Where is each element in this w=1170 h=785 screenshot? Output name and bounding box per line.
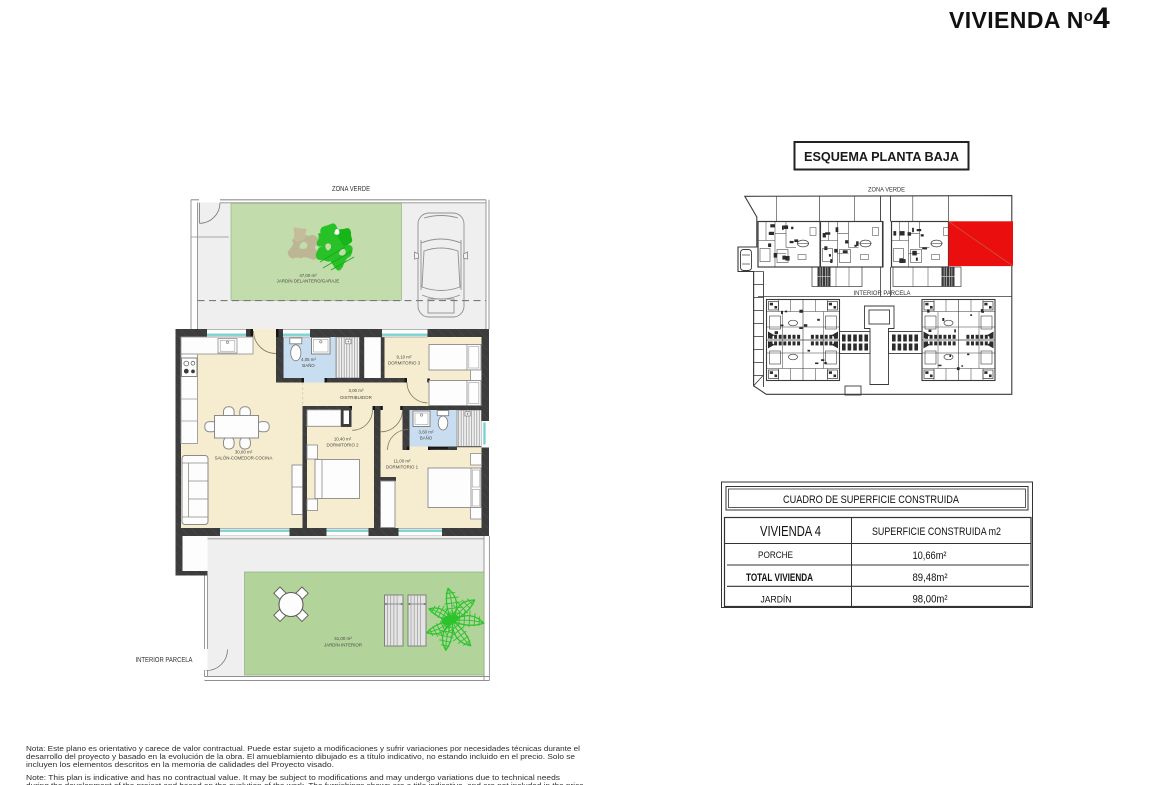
svg-text:JARDÍN INTERIOR: JARDÍN INTERIOR (324, 642, 362, 647)
svg-text:VIVIENDA 4: VIVIENDA 4 (760, 523, 821, 540)
svg-text:51,00 m²: 51,00 m² (334, 636, 352, 641)
svg-text:CUADRO DE SUPERFICIE CONSTRUID: CUADRO DE SUPERFICIE CONSTRUIDA (783, 494, 959, 506)
svg-text:SUPERFICIE CONSTRUIDA m2: SUPERFICIE CONSTRUIDA m2 (872, 526, 1001, 538)
svg-text:BAÑO: BAÑO (302, 363, 315, 368)
svg-text:3,00 m²: 3,00 m² (349, 388, 364, 393)
svg-text:10,66m²: 10,66m² (913, 550, 947, 562)
svg-text:DORMITORIO 2: DORMITORIO 2 (326, 442, 359, 447)
svg-text:3,60 m²: 3,60 m² (419, 429, 434, 434)
svg-text:JARDÍN DELANTERO/GARAJE: JARDÍN DELANTERO/GARAJE (277, 279, 340, 284)
svg-text:ZONA VERDE: ZONA VERDE (868, 187, 906, 194)
svg-text:TOTAL VIVIENDA: TOTAL VIVIENDA (746, 572, 813, 584)
svg-text:SALÓN-COMEDOR-COCINA: SALÓN-COMEDOR-COCINA (215, 455, 273, 460)
svg-text:4,05 m²: 4,05 m² (301, 357, 316, 362)
svg-text:89,48m²: 89,48m² (913, 572, 948, 584)
svg-text:BAÑO: BAÑO (420, 435, 433, 440)
svg-text:ESQUEMA PLANTA BAJA: ESQUEMA PLANTA BAJA (804, 149, 959, 164)
svg-text:PORCHE: PORCHE (758, 549, 793, 560)
svg-text:10,40 m²: 10,40 m² (334, 436, 352, 441)
svg-text:INTERIOR PARCELA: INTERIOR PARCELA (854, 290, 912, 297)
svg-text:INTERIOR PARCELA: INTERIOR PARCELA (136, 655, 193, 664)
svg-text:JARDÍN: JARDÍN (761, 594, 792, 605)
svg-text:98,00m²: 98,00m² (913, 594, 948, 606)
svg-text:DISTRIBUIDOR: DISTRIBUIDOR (340, 395, 371, 400)
svg-text:Note: This plan is indicative: Note: This plan is indicative and has no… (26, 773, 586, 785)
svg-text:DORMITORIO 1: DORMITORIO 1 (386, 464, 419, 469)
svg-text:DORMITORIO 3: DORMITORIO 3 (388, 360, 421, 365)
svg-text:11,00 m²: 11,00 m² (393, 459, 411, 464)
svg-text:30,00 m²: 30,00 m² (235, 450, 253, 455)
svg-text:47,00 m²: 47,00 m² (299, 273, 317, 278)
svg-text:ZONA VERDE: ZONA VERDE (332, 184, 370, 193)
svg-text:9,10 m²: 9,10 m² (397, 354, 412, 359)
